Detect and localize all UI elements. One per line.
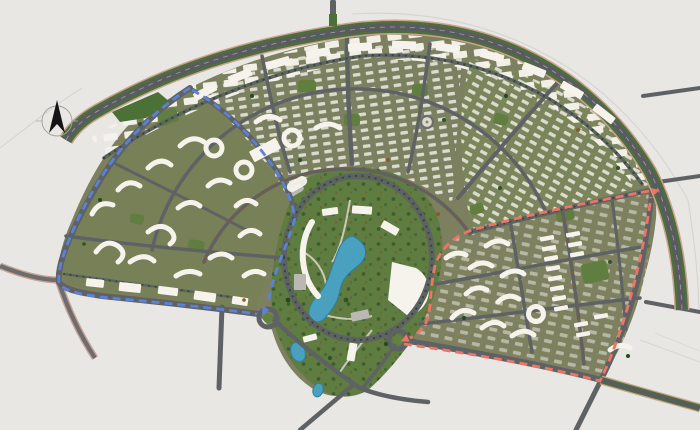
- north-plaza-circle: [421, 116, 433, 128]
- north-stub-median: [329, 14, 337, 26]
- masterplan-map: [0, 0, 700, 430]
- south-stub-road: [219, 307, 222, 388]
- masterplan-screenshot: [0, 0, 700, 430]
